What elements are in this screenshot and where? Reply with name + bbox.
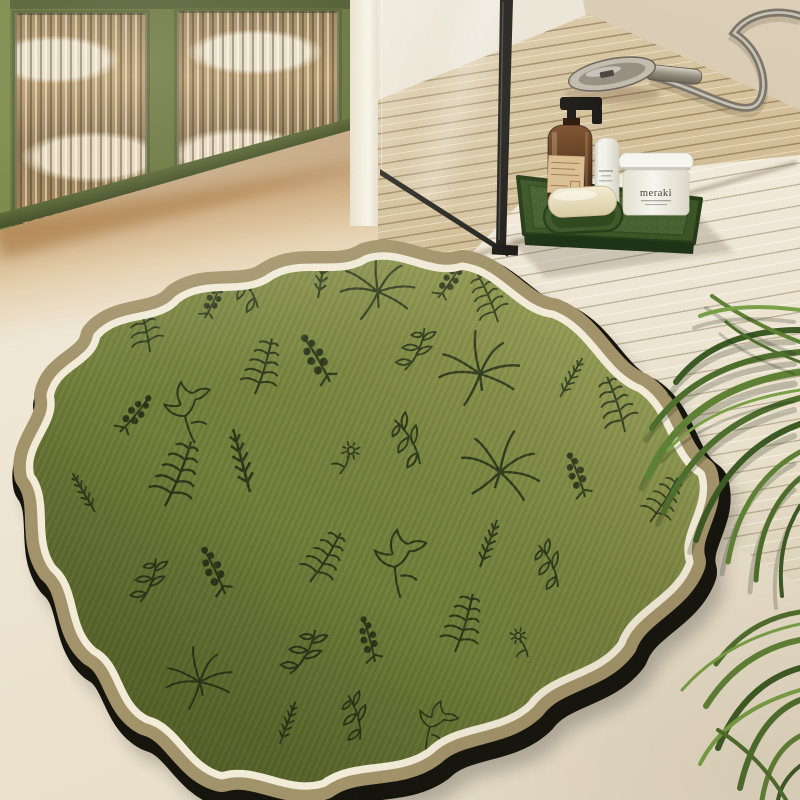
soap-bar [548, 185, 617, 218]
bathroom-scene: meraki [0, 0, 800, 800]
palm-frond-blade [718, 730, 786, 800]
frond-shadow [775, 518, 794, 608]
palm-frond-blade [682, 624, 800, 690]
scene-art: meraki [0, 0, 800, 800]
soap-dish [543, 185, 623, 234]
cream-jar: meraki [619, 153, 693, 215]
palm-frond-blade [781, 506, 800, 596]
frond-shadow [694, 319, 794, 328]
glass-frame [380, 0, 518, 257]
toiletry-tray [508, 177, 734, 278]
jar-label-text: meraki [640, 188, 672, 199]
palm-fronds-bottom [682, 612, 800, 800]
bath-mat-rug [33, 247, 713, 800]
